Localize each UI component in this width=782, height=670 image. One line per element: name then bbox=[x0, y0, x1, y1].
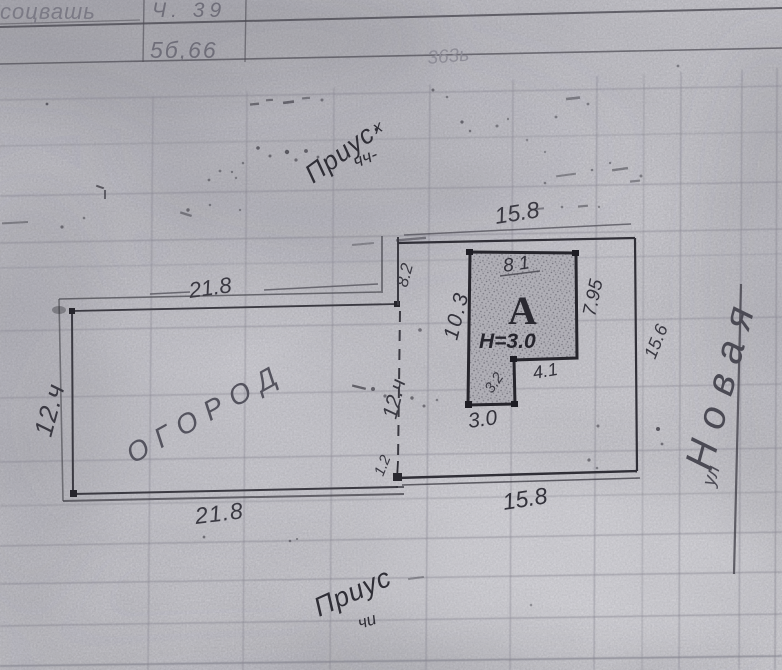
svg-text:4.1: 4.1 bbox=[531, 359, 559, 383]
svg-text:3.0: 3.0 bbox=[466, 406, 498, 433]
svg-text:Н=3.0: Н=3.0 bbox=[479, 330, 536, 353]
svg-text:5б,66: 5б,66 bbox=[150, 37, 218, 63]
svg-text:363ь: 363ь bbox=[427, 44, 470, 69]
svg-text:А: А bbox=[508, 288, 537, 333]
svg-text:Ч. 39: Ч. 39 bbox=[152, 0, 226, 22]
svg-text:соцвашь: соцвашь bbox=[0, 0, 96, 24]
